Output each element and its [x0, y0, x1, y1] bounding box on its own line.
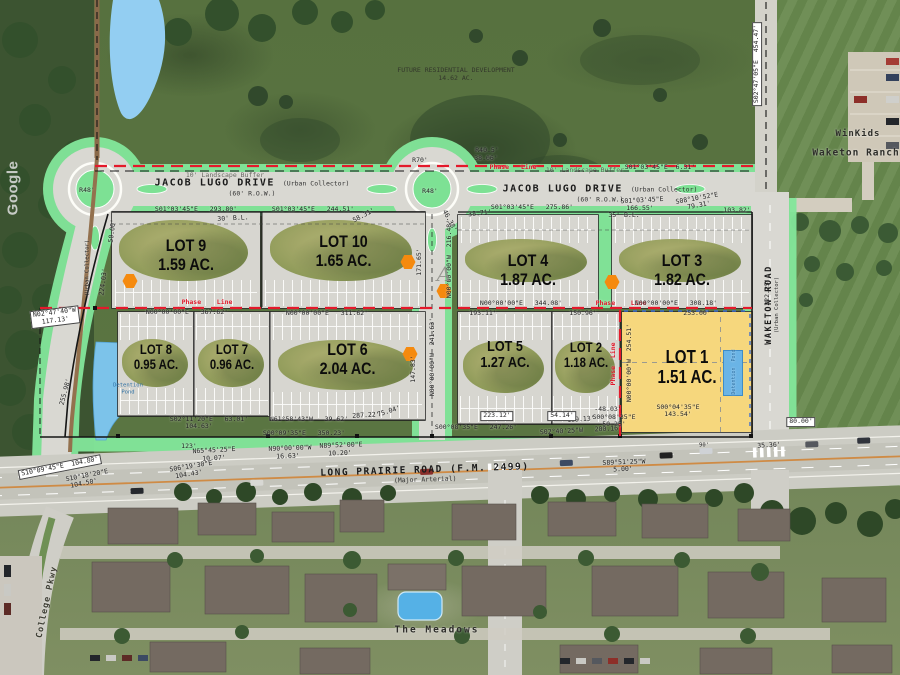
survey-nodes [93, 306, 753, 438]
plan-lines [0, 0, 900, 675]
site-plan-map: LOT 9 1.59 AC. LOT 10 1.65 AC. LOT 4 1.8… [0, 0, 900, 675]
phase-lines [40, 166, 757, 438]
utility-dashes [624, 311, 750, 428]
boundary-lines [40, 0, 766, 438]
